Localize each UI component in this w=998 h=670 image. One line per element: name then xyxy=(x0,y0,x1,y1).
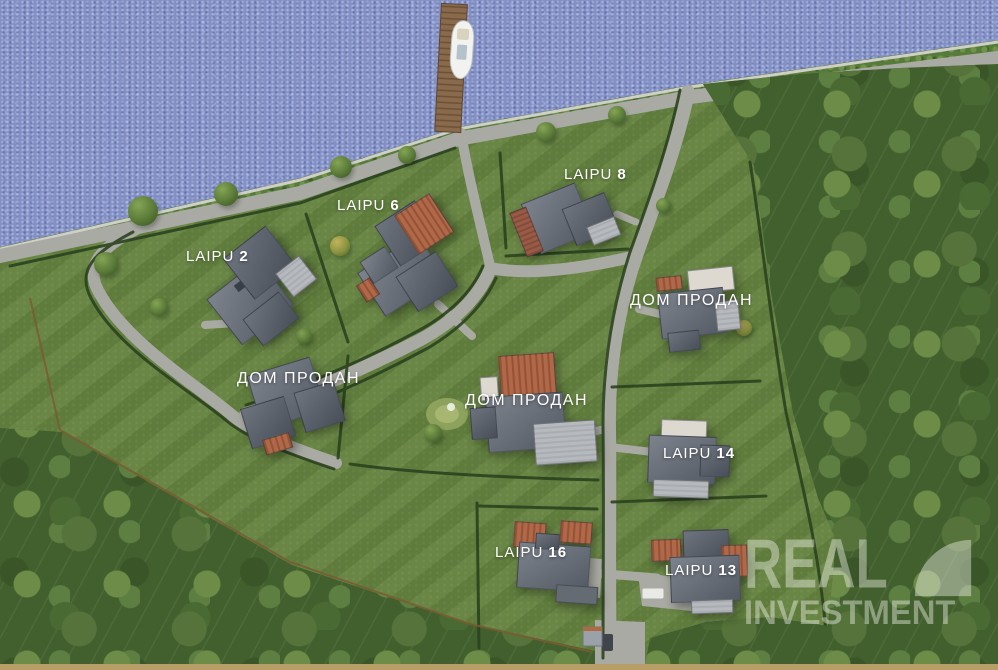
lot-label-text: LAIPU xyxy=(663,445,711,462)
bottom-border xyxy=(0,664,998,670)
hedge-line xyxy=(612,381,760,387)
lot-number: 16 xyxy=(548,544,567,561)
lot-label-sold-west[interactable]: ДОМ ПРОДАН xyxy=(237,370,360,388)
tree xyxy=(128,196,158,226)
tree xyxy=(94,252,118,276)
lot-label-text: LAIPU xyxy=(495,544,543,561)
lot-label-laipu-8[interactable]: LAIPU8 xyxy=(564,166,627,183)
gate-booth xyxy=(583,627,602,646)
lot-label-sold-east[interactable]: ДОМ ПРОДАН xyxy=(630,292,753,310)
lot-label-text: LAIPU xyxy=(186,248,234,265)
gazebo xyxy=(447,403,455,411)
hedge-line xyxy=(479,506,597,509)
tree xyxy=(398,146,416,164)
lot-label-sold-center[interactable]: ДОМ ПРОДАН xyxy=(465,392,588,410)
house-sold-east[interactable] xyxy=(641,261,748,359)
lot-label-text: ДОМ ПРОДАН xyxy=(237,370,360,388)
tree xyxy=(656,198,671,213)
pond-inner xyxy=(435,405,459,423)
lot-label-laipu-13[interactable]: LAIPU13 xyxy=(665,562,737,579)
tree xyxy=(424,424,442,442)
house-sold-center[interactable] xyxy=(454,345,604,477)
lot-label-text: ДОМ ПРОДАН xyxy=(465,392,588,410)
tree xyxy=(536,122,556,142)
lot-label-text: ДОМ ПРОДАН xyxy=(630,292,753,310)
lot-number: 2 xyxy=(239,248,248,265)
site-plan-canvas: LAIPU2 LAIPU6 LAIPU8 ДОМ ПРОДАН ДОМ ПРОД… xyxy=(0,0,998,670)
car xyxy=(602,634,613,651)
lot-number: 13 xyxy=(718,562,737,579)
tree xyxy=(150,298,168,316)
lot-label-laipu-16[interactable]: LAIPU16 xyxy=(495,544,567,561)
lot-number: 6 xyxy=(390,197,399,214)
lot-label-laipu-6[interactable]: LAIPU6 xyxy=(337,197,400,214)
boat-cabin xyxy=(456,44,467,60)
lot-label-text: LAIPU xyxy=(564,166,612,183)
lot-label-laipu-2[interactable]: LAIPU2 xyxy=(186,248,249,265)
fence-line xyxy=(30,298,60,430)
tree xyxy=(214,182,238,206)
house-laipu-16[interactable] xyxy=(501,513,607,612)
lot-number: 8 xyxy=(617,166,626,183)
lot-label-text: LAIPU xyxy=(665,562,713,579)
lot-label-laipu-14[interactable]: LAIPU14 xyxy=(663,445,735,462)
tree xyxy=(608,106,626,124)
tree xyxy=(330,156,352,178)
lot-number: 14 xyxy=(716,445,735,462)
lot-label-text: LAIPU xyxy=(337,197,385,214)
boat-deck xyxy=(457,28,470,40)
